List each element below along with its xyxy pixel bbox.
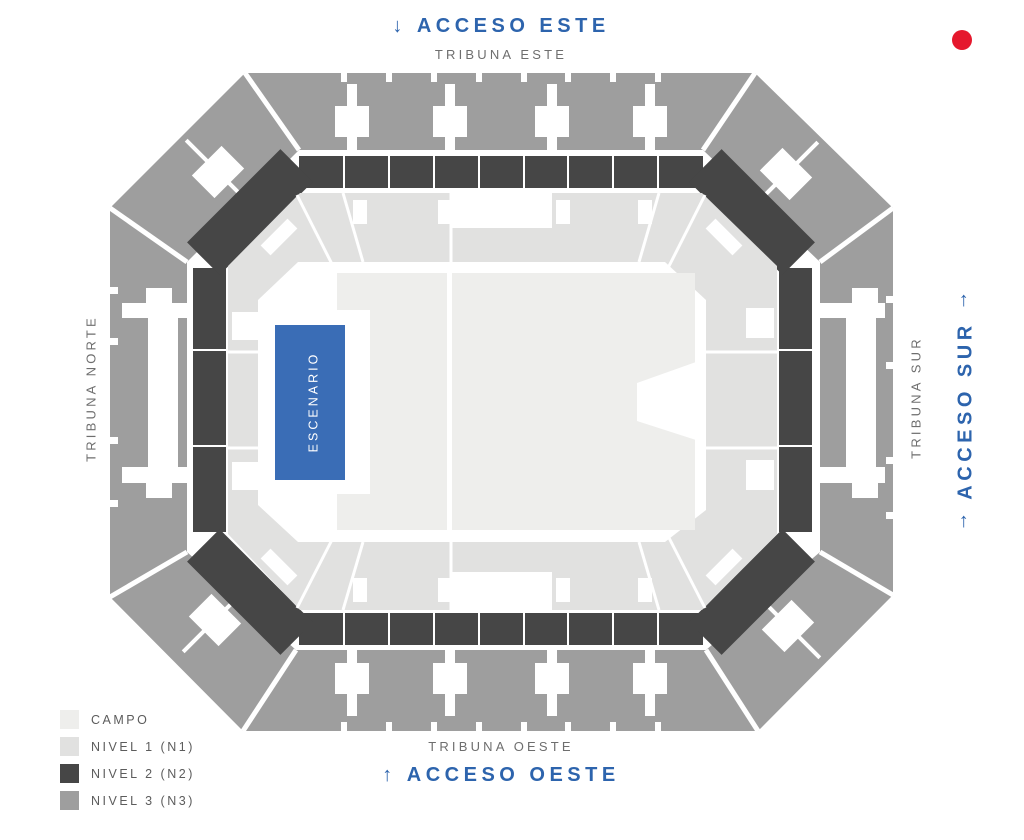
status-dot <box>952 30 972 50</box>
campo-swatch <box>60 710 79 729</box>
legend-label: NIVEL 2 (N2) <box>91 767 195 781</box>
arrow-up-icon: ↑ <box>382 764 397 787</box>
arrow-up-icon: ↑ <box>959 289 974 312</box>
legend: CAMPO NIVEL 1 (N1) NIVEL 2 (N2) NIVEL 3 … <box>60 706 195 814</box>
nivel1-swatch <box>60 737 79 756</box>
nivel3-swatch <box>60 791 79 810</box>
legend-label: CAMPO <box>91 713 149 727</box>
arrow-down-icon: ↓ <box>392 15 407 38</box>
tribuna-sur-label: TRIBUNA SUR <box>909 248 924 548</box>
acceso-sur-label: ↑ACCESO SUR↑ <box>955 256 978 556</box>
nivel2-swatch <box>60 764 79 783</box>
legend-label: NIVEL 3 (N3) <box>91 794 195 808</box>
legend-label: NIVEL 1 (N1) <box>91 740 195 754</box>
legend-item-nivel2: NIVEL 2 (N2) <box>60 760 195 787</box>
stadium-seating-map-page: ESCENARIO ↓ACCESO ESTE TRIBUNA ESTE TRIB… <box>0 0 1024 840</box>
arrow-up-icon: ↑ <box>959 509 974 532</box>
legend-item-nivel1: NIVEL 1 (N1) <box>60 733 195 760</box>
tribuna-norte-label: TRIBUNA NORTE <box>84 239 99 539</box>
legend-item-campo: CAMPO <box>60 706 195 733</box>
legend-item-nivel3: NIVEL 3 (N3) <box>60 787 195 814</box>
acceso-este-label: ↓ACCESO ESTE <box>0 15 1002 38</box>
tribuna-este-label: TRIBUNA ESTE <box>0 47 1002 62</box>
stage-label: ESCENARIO <box>306 352 320 453</box>
